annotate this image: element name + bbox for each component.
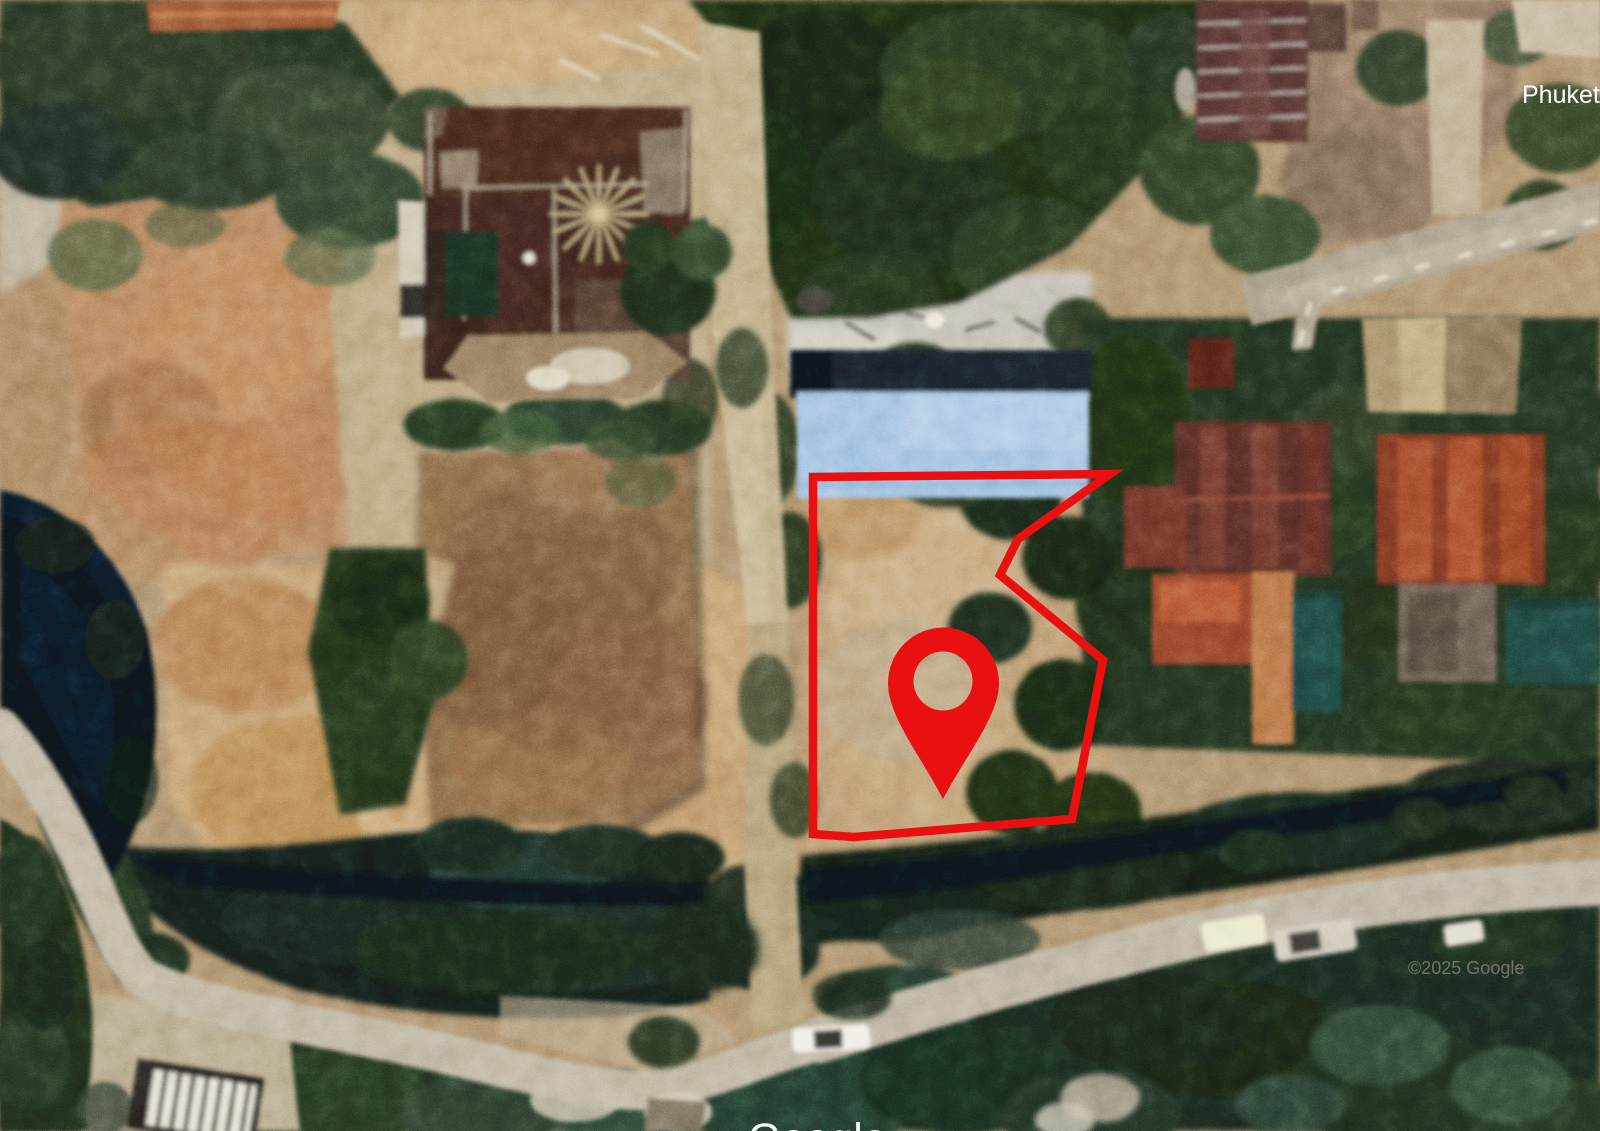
svg-text:Google: Google — [748, 1115, 887, 1131]
svg-text:Phuket: Phuket — [1522, 81, 1600, 109]
svg-text:©2025 Google: ©2025 Google — [1408, 958, 1524, 978]
